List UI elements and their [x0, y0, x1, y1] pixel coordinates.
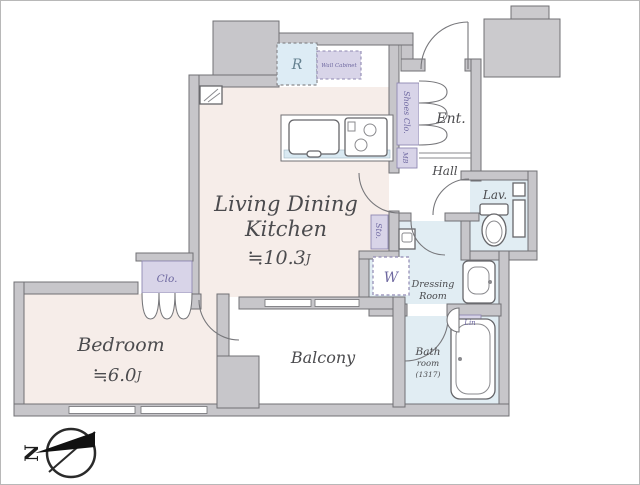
wall-segment	[399, 213, 411, 221]
entrance-door-arc	[421, 22, 468, 69]
north-compass: N	[21, 429, 95, 477]
wall-segment	[461, 171, 537, 180]
balcony-label: Balcony	[290, 348, 356, 367]
shoes-closet-label: Shoes Clo.	[402, 91, 411, 134]
wall-segment	[389, 211, 399, 253]
window	[141, 407, 207, 414]
pillar	[217, 356, 259, 408]
neighbor-block	[484, 19, 560, 77]
refrigerator-label: R	[291, 57, 303, 73]
bathroom-label-line1: Bath	[415, 346, 441, 358]
wall-segment	[499, 251, 509, 416]
kitchen-sink	[289, 120, 339, 154]
entrance-label: Ent.	[435, 111, 465, 127]
wall-segment	[14, 282, 24, 416]
dressing-label-line2: Room	[418, 291, 447, 302]
window	[315, 300, 359, 307]
linen-label: Lin	[463, 319, 476, 327]
compass-north-label: N	[21, 444, 43, 461]
bedroom-area-value: ≒6.0	[93, 365, 137, 386]
ldk-label-line2: Kitchen	[244, 217, 327, 241]
bathroom-label-line3: (1317)	[416, 370, 441, 379]
wall-segment	[217, 294, 229, 364]
stove	[345, 118, 387, 156]
sink-notch	[307, 151, 321, 157]
wall-segment	[445, 213, 479, 221]
shoes-closet-folding-door	[419, 125, 447, 145]
wall-segment	[213, 21, 279, 77]
washing-machine-label: W	[384, 270, 400, 286]
floor-plan-svg: Living Dining Kitchen ≒10.3J Bedroom ≒6.…	[1, 1, 639, 484]
shoes-closet-folding-door	[419, 81, 447, 103]
dressing-label-line1: Dressing	[411, 279, 455, 290]
wall-segment	[471, 59, 481, 181]
window	[265, 300, 311, 307]
ldk-area-value: ≒10.3	[247, 247, 305, 269]
floor-plan-image: Living Dining Kitchen ≒10.3J Bedroom ≒6.…	[0, 0, 640, 485]
storage-label: Sto.	[374, 223, 383, 239]
lavatory-cabinet	[513, 200, 525, 237]
wall-segment	[189, 75, 279, 87]
lavatory-shelf	[513, 183, 525, 196]
lavatory-door-arc	[433, 179, 469, 215]
toilet-bowl	[482, 214, 506, 246]
closet-label: Clo.	[157, 273, 178, 285]
bedroom-area: ≒6.0J	[93, 365, 143, 386]
wall-segment	[393, 297, 405, 407]
entrance-step-line	[419, 153, 471, 158]
wall-segment	[14, 282, 138, 294]
bathtub-faucet	[458, 357, 462, 361]
wall-segment	[528, 171, 537, 260]
bathroom-label-line2: room	[417, 359, 439, 369]
hall-label: Hall	[431, 164, 457, 178]
bedroom-label: Bedroom	[76, 334, 164, 356]
wall-cabinet-label: Wall Cabinet	[321, 63, 357, 69]
washbasin-faucet	[488, 280, 492, 284]
window	[69, 407, 135, 414]
wall-segment	[136, 253, 193, 261]
lavatory-label: Lav.	[482, 188, 507, 202]
ldk-area: ≒10.3J	[247, 247, 311, 269]
meter-box-label: MB	[401, 151, 409, 164]
ldk-label-line1: Living Dining	[213, 192, 358, 216]
